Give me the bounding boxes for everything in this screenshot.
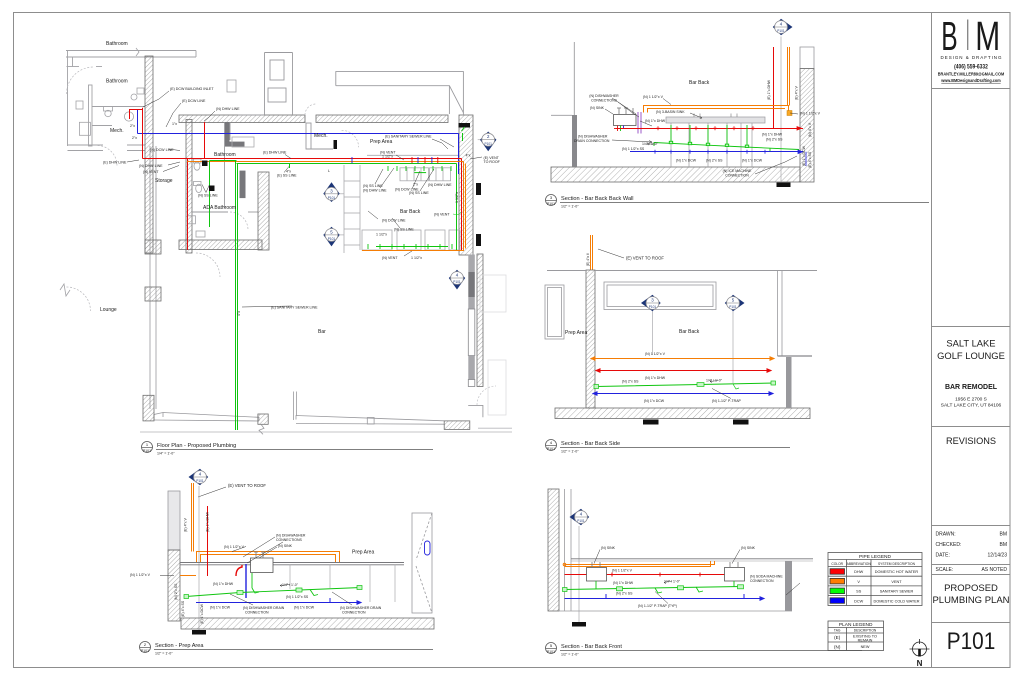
svg-text:Section - Bar Back Side: Section - Bar Back Side [561, 441, 620, 447]
svg-text:N: N [917, 659, 923, 668]
svg-text:SALT LAKE CITY, UT 84106: SALT LAKE CITY, UT 84106 [941, 403, 1002, 409]
svg-text:Bar Back: Bar Back [689, 80, 710, 86]
svg-text:(E) SANITARY SEWER LINE: (E) SANITARY SEWER LINE [385, 135, 432, 139]
svg-text:(N) SINK: (N) SINK [601, 546, 616, 550]
svg-text:(E) 4"x V: (E) 4"x V [795, 85, 799, 100]
svg-text:4"x: 4"x [466, 154, 471, 158]
svg-text:1956 E 2700 S: 1956 E 2700 S [955, 397, 987, 403]
svg-text:Lounge: Lounge [100, 307, 117, 313]
svg-text:(N) 1"x DCW: (N) 1"x DCW [210, 606, 231, 610]
svg-text:NEW: NEW [861, 645, 870, 649]
svg-text:P101: P101 [547, 650, 555, 654]
svg-text:DRAWN:: DRAWN: [936, 532, 956, 538]
svg-text:(N) 1-1/2" P-TRAP (TYP): (N) 1-1/2" P-TRAP (TYP) [638, 604, 677, 608]
svg-text:(E) 4"x SS: (E) 4"x SS [181, 600, 185, 617]
svg-text:CONNECTION: CONNECTION [245, 611, 269, 615]
svg-text:4: 4 [550, 440, 553, 445]
svg-text:(E) VENT TO ROOF: (E) VENT TO ROOF [626, 256, 664, 261]
svg-text:Prep Area: Prep Area [565, 330, 587, 336]
svg-text:(N) 1"x DCW: (N) 1"x DCW [294, 606, 315, 610]
svg-text:(E) DHW LINE: (E) DHW LINE [103, 161, 127, 165]
svg-text:(N) DISHWASHER DRAIN: (N) DISHWASHER DRAIN [340, 606, 382, 610]
svg-text:(N) 2"x SS: (N) 2"x SS [616, 592, 633, 596]
svg-text:P101: P101 [484, 142, 492, 146]
svg-text:(N) DHW LINE: (N) DHW LINE [216, 107, 240, 111]
svg-text:P101: P101 [196, 479, 204, 483]
svg-text:(N) 2"x SS: (N) 2"x SS [766, 138, 783, 142]
svg-text:(E) 4"x V: (E) 4"x V [184, 517, 188, 532]
svg-text:SALT LAKE: SALT LAKE [946, 338, 995, 349]
svg-text:M: M [975, 13, 1000, 59]
svg-text:COLOR: COLOR [831, 562, 843, 566]
svg-text:P101: P101 [577, 519, 585, 523]
svg-text:TAG: TAG [834, 628, 841, 632]
svg-text:DESIGN & DRAFTING: DESIGN & DRAFTING [941, 55, 1003, 60]
svg-text:SYSTEM DESCRIPTION: SYSTEM DESCRIPTION [878, 562, 916, 566]
svg-text:(N) DISHWASHER: (N) DISHWASHER [276, 534, 306, 538]
svg-text:1/2" = 1'-0": 1/2" = 1'-0" [561, 450, 579, 454]
svg-text:Section - Prep Area: Section - Prep Area [155, 643, 204, 649]
svg-text:(N) 1 1/2"x V: (N) 1 1/2"x V [800, 112, 821, 116]
svg-text:Bar Back: Bar Back [400, 209, 421, 215]
svg-text:(N) SINK: (N) SINK [278, 544, 293, 548]
svg-text:1/2" = 1'-0": 1/2" = 1'-0" [155, 652, 173, 656]
svg-text:(E) 1"x DHW: (E) 1"x DHW [206, 511, 210, 532]
svg-text:(N) 1"x DCW: (N) 1"x DCW [644, 399, 665, 403]
svg-text:2: 2 [144, 642, 147, 647]
svg-text:Bathroom: Bathroom [106, 41, 128, 47]
svg-text:Prep Area: Prep Area [352, 550, 374, 556]
svg-text:PIPE LEGEND: PIPE LEGEND [859, 554, 892, 560]
svg-text:P101: P101 [547, 202, 555, 206]
svg-text:(N) SINK: (N) SINK [590, 106, 605, 110]
svg-text:(N) DISHWASHER: (N) DISHWASHER [578, 135, 608, 139]
svg-text:SS: SS [856, 590, 862, 594]
svg-text:4"x: 4"x [237, 311, 241, 316]
svg-text:BM: BM [1000, 542, 1008, 548]
svg-text:DATE:: DATE: [936, 553, 950, 559]
svg-text:(N) 1 1/2"x V: (N) 1 1/2"x V [224, 545, 245, 549]
svg-text:Storage: Storage [155, 178, 173, 184]
svg-text:1"x: 1"x [172, 122, 177, 126]
svg-text:5: 5 [550, 643, 553, 648]
svg-text:(E) 4"x SS: (E) 4"x SS [808, 151, 812, 168]
svg-text:(N) 1"x DHW: (N) 1"x DHW [645, 119, 666, 123]
svg-text:BRANTLEY.MILLER89@GMAIL.COM: BRANTLEY.MILLER89@GMAIL.COM [938, 71, 1005, 76]
svg-text:P101: P101 [649, 305, 657, 309]
svg-text:1/2" = 1'-0": 1/2" = 1'-0" [561, 653, 579, 657]
svg-text:REMAIN: REMAIN [858, 638, 873, 642]
svg-text:(N) 1"x DHW: (N) 1"x DHW [645, 376, 666, 380]
svg-text:DHW: DHW [854, 570, 863, 574]
svg-text:1/2" = 1'-0": 1/2" = 1'-0" [561, 205, 579, 209]
svg-text:DOMESTIC COLD WATER: DOMESTIC COLD WATER [874, 599, 920, 603]
svg-text:2"x: 2"x [132, 136, 137, 140]
svg-text:BM: BM [1000, 532, 1008, 538]
svg-text:(N) 1"x DHW: (N) 1"x DHW [762, 133, 783, 137]
svg-text:2"x: 2"x [130, 124, 135, 128]
svg-text:V: V [857, 580, 860, 584]
svg-text:DESCRIPTION: DESCRIPTION [854, 628, 877, 632]
svg-text:(E) SS LINE: (E) SS LINE [277, 174, 297, 178]
svg-text:DCW: DCW [854, 599, 863, 603]
svg-text:P101: P101 [141, 649, 149, 653]
svg-text:(N) 2"x SS: (N) 2"x SS [706, 159, 723, 163]
svg-text:CONNECTION: CONNECTION [725, 174, 749, 178]
svg-text:DRAIN CONNECTION: DRAIN CONNECTION [574, 139, 610, 143]
svg-text:1/4" / 1'-0": 1/4" / 1'-0" [706, 379, 723, 383]
svg-text:(N) SODA MACHINE: (N) SODA MACHINE [750, 575, 783, 579]
svg-text:PLUMBING PLAN: PLUMBING PLAN [932, 595, 1009, 606]
svg-text:PLAN LEGEND: PLAN LEGEND [839, 622, 873, 628]
svg-text:(N) DHW LINE: (N) DHW LINE [428, 183, 452, 187]
svg-text:3: 3 [550, 195, 553, 200]
svg-text:(N) 1 1/2"x V: (N) 1 1/2"x V [643, 95, 664, 99]
svg-text:P101: P101 [777, 29, 785, 33]
svg-text:(N) DHW LINE: (N) DHW LINE [139, 164, 163, 168]
svg-text:(N) 1"x DCW: (N) 1"x DCW [742, 159, 763, 163]
svg-text:4"x: 4"x [286, 170, 291, 174]
svg-text:(N) VENT: (N) VENT [434, 213, 450, 217]
svg-text:(E) DHW LINE: (E) DHW LINE [263, 151, 287, 155]
svg-text:(N) SINK: (N) SINK [741, 546, 756, 550]
svg-text:(E) 1"x DCW: (E) 1"x DCW [802, 145, 806, 166]
svg-text:(N) VENT: (N) VENT [382, 256, 398, 260]
svg-text:CONNECTION: CONNECTION [750, 579, 774, 583]
svg-text:(E) 4"x V: (E) 4"x V [586, 252, 590, 266]
svg-text:(N) VENT: (N) VENT [143, 170, 159, 174]
svg-text:Bar Back: Bar Back [679, 329, 700, 335]
svg-text:Bar: Bar [318, 329, 326, 335]
svg-text:Section - Bar Back Back Wall: Section - Bar Back Back Wall [561, 196, 634, 202]
svg-text:GOLF LOUNGE: GOLF LOUNGE [937, 350, 1005, 361]
svg-text:(E) 1"x DHW: (E) 1"x DHW [767, 79, 771, 100]
svg-text:SANITARY SEWER: SANITARY SEWER [880, 590, 914, 594]
svg-text:TO ROOF: TO ROOF [484, 160, 501, 164]
svg-text:(N) 2"x SS: (N) 2"x SS [174, 583, 178, 600]
svg-text:VENT: VENT [891, 580, 902, 584]
svg-text:CONNECTIONS: CONNECTIONS [276, 538, 303, 542]
svg-text:(406) 559-6332: (406) 559-6332 [954, 64, 988, 71]
svg-text:1 1/2"x: 1 1/2"x [411, 256, 422, 260]
svg-text:P101: P101 [453, 280, 461, 284]
svg-text:(N) 2"x SS: (N) 2"x SS [622, 380, 639, 384]
svg-text:SCALE:: SCALE: [936, 567, 954, 573]
svg-text:(E) DCW BUILDING INLET: (E) DCW BUILDING INLET [170, 87, 214, 91]
svg-text:L: L [328, 169, 330, 173]
svg-text:1 1/2"x: 1 1/2"x [382, 155, 393, 159]
svg-text:(N) 1-1/2" P-TRAP: (N) 1-1/2" P-TRAP [712, 399, 742, 403]
svg-text:P101: P101 [143, 449, 151, 453]
svg-text:(N) 1"x DHW: (N) 1"x DHW [613, 581, 634, 585]
svg-text:(E) DCW LINE: (E) DCW LINE [182, 99, 206, 103]
svg-text:P101: P101 [328, 237, 336, 241]
svg-text:(N) SS LINE: (N) SS LINE [394, 228, 414, 232]
svg-text:CONNECTION: CONNECTION [342, 611, 366, 615]
svg-text:www.BMDesignandDrafting.com: www.BMDesignandDrafting.com [940, 78, 1001, 83]
svg-text:(N) ICE MACHINE: (N) ICE MACHINE [723, 169, 752, 173]
svg-text:(N) 1"x DHW: (N) 1"x DHW [213, 582, 234, 586]
svg-text:1: 1 [146, 442, 149, 447]
svg-text:1/4" / 1'-0": 1/4" / 1'-0" [664, 580, 681, 584]
svg-text:Mech.: Mech. [110, 128, 124, 134]
svg-text:(N) 1 1/2"x V: (N) 1 1/2"x V [645, 352, 666, 356]
svg-text:CHECKED:: CHECKED: [936, 542, 962, 548]
svg-text:(N) DISHWASHER DRAIN: (N) DISHWASHER DRAIN [243, 606, 285, 610]
svg-text:(N) 1 1/2"x SS: (N) 1 1/2"x SS [622, 147, 645, 151]
svg-text:1 1/2"x: 1 1/2"x [376, 233, 387, 237]
svg-text:ADA Bathroom: ADA Bathroom [203, 205, 236, 211]
svg-text:(N) SS LINE: (N) SS LINE [409, 191, 429, 195]
svg-text:(N) 1 1/2"x V: (N) 1 1/2"x V [612, 569, 633, 573]
svg-text:(N) 4"x V: (N) 4"x V [808, 122, 812, 137]
svg-text:B: B [941, 14, 957, 60]
svg-text:Prep Area: Prep Area [370, 139, 392, 145]
svg-text:1/4" = 1'-0": 1/4" = 1'-0" [157, 452, 175, 456]
svg-text:REVISIONS: REVISIONS [946, 436, 996, 446]
svg-text:(N): (N) [834, 644, 841, 649]
svg-text:Bathroom: Bathroom [214, 152, 236, 158]
svg-text:Mech.: Mech. [314, 133, 328, 139]
svg-text:(N) DHW LINE: (N) DHW LINE [363, 189, 387, 193]
svg-text:ABBREVIATION: ABBREVIATION [847, 562, 872, 566]
svg-text:(E): (E) [834, 635, 841, 640]
svg-text:12/14/23: 12/14/23 [988, 553, 1008, 559]
svg-text:P101: P101 [328, 196, 336, 200]
svg-text:(N) 1 1/2"x SS: (N) 1 1/2"x SS [286, 595, 309, 599]
svg-text:P101: P101 [547, 447, 555, 451]
svg-text:(E) VENT TO ROOF: (E) VENT TO ROOF [228, 483, 266, 488]
svg-text:AS NOTED: AS NOTED [981, 567, 1007, 573]
svg-text:(N) SS LINE: (N) SS LINE [198, 194, 218, 198]
svg-text:(N) DISHWASHER: (N) DISHWASHER [589, 94, 619, 98]
svg-text:PROPOSED: PROPOSED [944, 583, 998, 594]
svg-text:(N) 1"x DCW: (N) 1"x DCW [676, 159, 697, 163]
svg-text:(N) 1 1/2"x V: (N) 1 1/2"x V [130, 573, 151, 577]
svg-text:Floor Plan - Proposed Plumbing: Floor Plan - Proposed Plumbing [157, 443, 236, 449]
svg-text:P101: P101 [947, 626, 996, 654]
svg-text:P101: P101 [729, 305, 737, 309]
svg-text:BAR REMODEL: BAR REMODEL [945, 384, 998, 391]
svg-text:(N) DCW LINE: (N) DCW LINE [150, 148, 174, 152]
svg-text:Section - Bar Back Front: Section - Bar Back Front [561, 644, 622, 650]
svg-text:Bathroom: Bathroom [106, 79, 128, 85]
svg-text:DOMESTIC HOT WATER: DOMESTIC HOT WATER [875, 570, 919, 574]
svg-text:1 1/2"x: 1 1/2"x [455, 192, 459, 203]
svg-text:(N) 3-BASIN SINK: (N) 3-BASIN SINK [656, 110, 685, 114]
